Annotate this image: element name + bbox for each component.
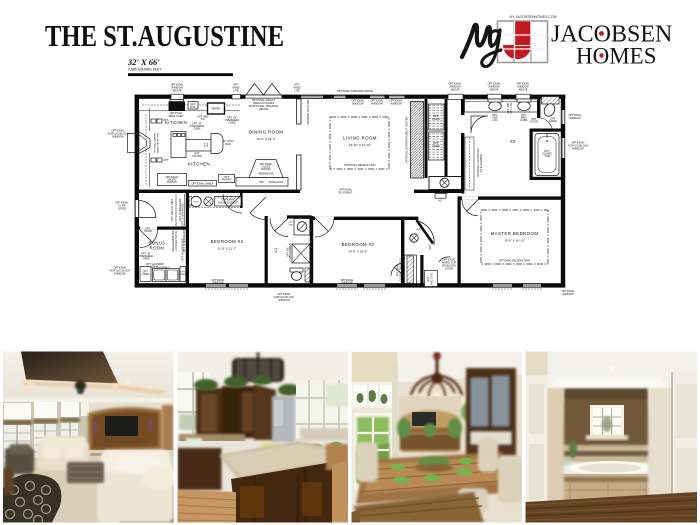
- svg-text:TUB: TUB: [544, 154, 549, 158]
- svg-text:DOOR: DOOR: [118, 207, 126, 211]
- svg-text:OPTIONAL WINDOWS ABOVE: OPTIONAL WINDOWS ABOVE: [337, 89, 374, 93]
- svg-text:CABS: CABS: [193, 127, 200, 131]
- svg-text:OPTIONAL WINDOW: OPTIONAL WINDOW: [306, 99, 310, 125]
- svg-text:OPTIONAL GARDEN: OPTIONAL GARDEN: [154, 133, 157, 153]
- svg-text:15'-6" X 16'-10": 15'-6" X 16'-10": [504, 239, 525, 243]
- svg-text:LINEN: LINEN: [549, 119, 557, 123]
- svg-text:LITE: LITE: [233, 89, 239, 93]
- svg-text:OPT.: OPT.: [163, 118, 169, 122]
- svg-text:OPTIONAL RECESS TRAY: OPTIONAL RECESS TRAY: [499, 259, 531, 263]
- svg-text:F.S.: F.S.: [201, 117, 206, 121]
- svg-text:STL. LAV.: STL. LAV.: [509, 102, 513, 114]
- svg-text:(REDESIGN): (REDESIGN): [258, 172, 273, 176]
- svg-text:WINDOW: WINDOW: [278, 298, 290, 302]
- svg-text:#1: #1: [273, 247, 278, 253]
- svg-text:OPT. BENCH SEAT: OPT. BENCH SEAT: [170, 198, 174, 221]
- svg-text:BEDROOM #2: BEDROOM #2: [342, 242, 375, 247]
- svg-text:2,085 SQUARE FEET: 2,085 SQUARE FEET: [128, 68, 161, 72]
- svg-text:TILE SHOWER: TILE SHOWER: [479, 154, 483, 172]
- svg-text:OPT.: OPT.: [205, 142, 207, 147]
- svg-text:WINDOW: WINDOW: [212, 280, 224, 284]
- svg-text:WIC LITE: WIC LITE: [430, 273, 434, 285]
- svg-text:LIVING ROOM: LIVING ROOM: [343, 136, 377, 141]
- svg-text:BEDROOM #3: BEDROOM #3: [211, 239, 244, 244]
- svg-text:OPTIONAL SHELF: OPTIONAL SHELF: [191, 182, 214, 186]
- svg-text:ABOVE: ABOVE: [173, 89, 182, 93]
- svg-text:ABOVE: ABOVE: [259, 107, 268, 111]
- svg-text:HOMES: HOMES: [576, 44, 657, 69]
- svg-text:CABS.: CABS.: [520, 118, 528, 122]
- svg-text:DOOR: DOOR: [144, 229, 152, 233]
- svg-text:CABS: CABS: [142, 257, 149, 261]
- svg-text:MY JACOBSENHOMES.COM: MY JACOBSENHOMES.COM: [510, 15, 557, 19]
- svg-text:WINDO ABOVE SINK: WINDO ABOVE SINK: [157, 132, 160, 153]
- svg-text:ISLAND: ISLAND: [192, 154, 201, 158]
- svg-text:11'-8" X 12'-2": 11'-8" X 12'-2": [218, 247, 237, 251]
- svg-text:OPT.: OPT.: [259, 180, 265, 184]
- svg-text:WINDOW: WINDOW: [562, 292, 574, 296]
- svg-text:LITE: LITE: [294, 89, 300, 93]
- svg-text:D.W.: D.W.: [190, 105, 196, 109]
- svg-text:LAV.: LAV.: [492, 118, 497, 122]
- svg-text:A.C.: A.C.: [416, 227, 421, 231]
- svg-text:A.C.: A.C.: [438, 199, 443, 203]
- svg-text:WINE RACK: WINE RACK: [269, 180, 284, 184]
- svg-text:OPTIONAL RECESS TRAY: OPTIONAL RECESS TRAY: [344, 163, 376, 167]
- svg-text:ABOVE: ABOVE: [490, 88, 499, 92]
- svg-text:WINDOW: WINDOW: [569, 116, 581, 120]
- svg-text:WINDOW: WINDOW: [114, 272, 126, 276]
- svg-text:KITCHEN: KITCHEN: [188, 162, 210, 167]
- svg-text:OPT. OVERHEADS: OPT. OVERHEADS: [181, 238, 185, 261]
- svg-text:DOUBLE SHELVES: DOUBLE SHELVES: [398, 258, 402, 281]
- svg-text:DOOR: DOOR: [530, 120, 538, 124]
- svg-text:BAR: BAR: [225, 142, 230, 146]
- svg-text:LINEN: LINEN: [142, 272, 150, 276]
- svg-text:DOORS: DOORS: [261, 167, 271, 171]
- svg-text:OPT.: OPT.: [426, 276, 430, 282]
- svg-text:14'-8" X 10'-8": 14'-8" X 10'-8": [349, 250, 368, 254]
- svg-text:ROOM: ROOM: [150, 246, 165, 251]
- svg-text:FLOORING: FLOORING: [339, 191, 353, 195]
- svg-text:10'-6" X 14'-6": 10'-6" X 14'-6": [257, 137, 276, 141]
- svg-text:PANTRY: PANTRY: [167, 180, 178, 184]
- svg-text:WINDOW: WINDOW: [112, 135, 124, 139]
- svg-text:WINDOW: WINDOW: [572, 147, 584, 151]
- svg-text:WINDOW: WINDOW: [390, 102, 402, 106]
- svg-text:LINEN: LINEN: [180, 274, 187, 276]
- svg-text:WINDOW: WINDOW: [341, 280, 353, 284]
- svg-text:ABOVE: ABOVE: [519, 88, 528, 92]
- svg-text:24.5": 24.5": [428, 244, 432, 250]
- svg-text:OPT.: OPT.: [163, 158, 169, 162]
- svg-text:WINDOW: WINDOW: [371, 102, 383, 106]
- svg-text:#2: #2: [510, 139, 516, 144]
- svg-text:LINEN: LINEN: [432, 117, 440, 121]
- svg-text:CONNECTIONS: CONNECTIONS: [174, 231, 178, 250]
- svg-text:THE ST.AUGUSTINE: THE ST.AUGUSTINE: [45, 19, 284, 53]
- svg-text:DOOR: DOOR: [445, 267, 453, 271]
- svg-text:CABS: CABS: [228, 121, 235, 125]
- svg-text:MASTER BEDROOM: MASTER BEDROOM: [491, 231, 539, 236]
- svg-text:OPT. OVERHEADS: OPT. OVERHEADS: [181, 203, 185, 226]
- svg-text:PANTRY: PANTRY: [221, 178, 232, 182]
- svg-text:LINEN: LINEN: [432, 144, 440, 148]
- svg-text:32' X 66': 32' X 66': [127, 57, 160, 67]
- svg-text:M.B.: M.B.: [289, 225, 294, 227]
- svg-text:DINING ROOM: DINING ROOM: [249, 130, 284, 135]
- svg-text:WINDOW: WINDOW: [352, 102, 364, 106]
- svg-text:W.H.: W.H.: [194, 202, 199, 204]
- svg-text:OPT. OVERHEADS: OPT. OVERHEADS: [150, 266, 170, 269]
- svg-text:REFER: REFER: [212, 107, 221, 111]
- svg-text:19'-10" X 14'-10": 19'-10" X 14'-10": [349, 143, 371, 147]
- svg-text:OPTIONAL ENTERTAINMENT CENTER: OPTIONAL ENTERTAINMENT CENTER: [405, 116, 409, 163]
- svg-text:TUB/SHOWER: TUB/SHOWER: [288, 243, 292, 261]
- svg-text:DBLE OVEN: DBLE OVEN: [169, 114, 184, 118]
- svg-text:ABOVE: ABOVE: [451, 88, 460, 92]
